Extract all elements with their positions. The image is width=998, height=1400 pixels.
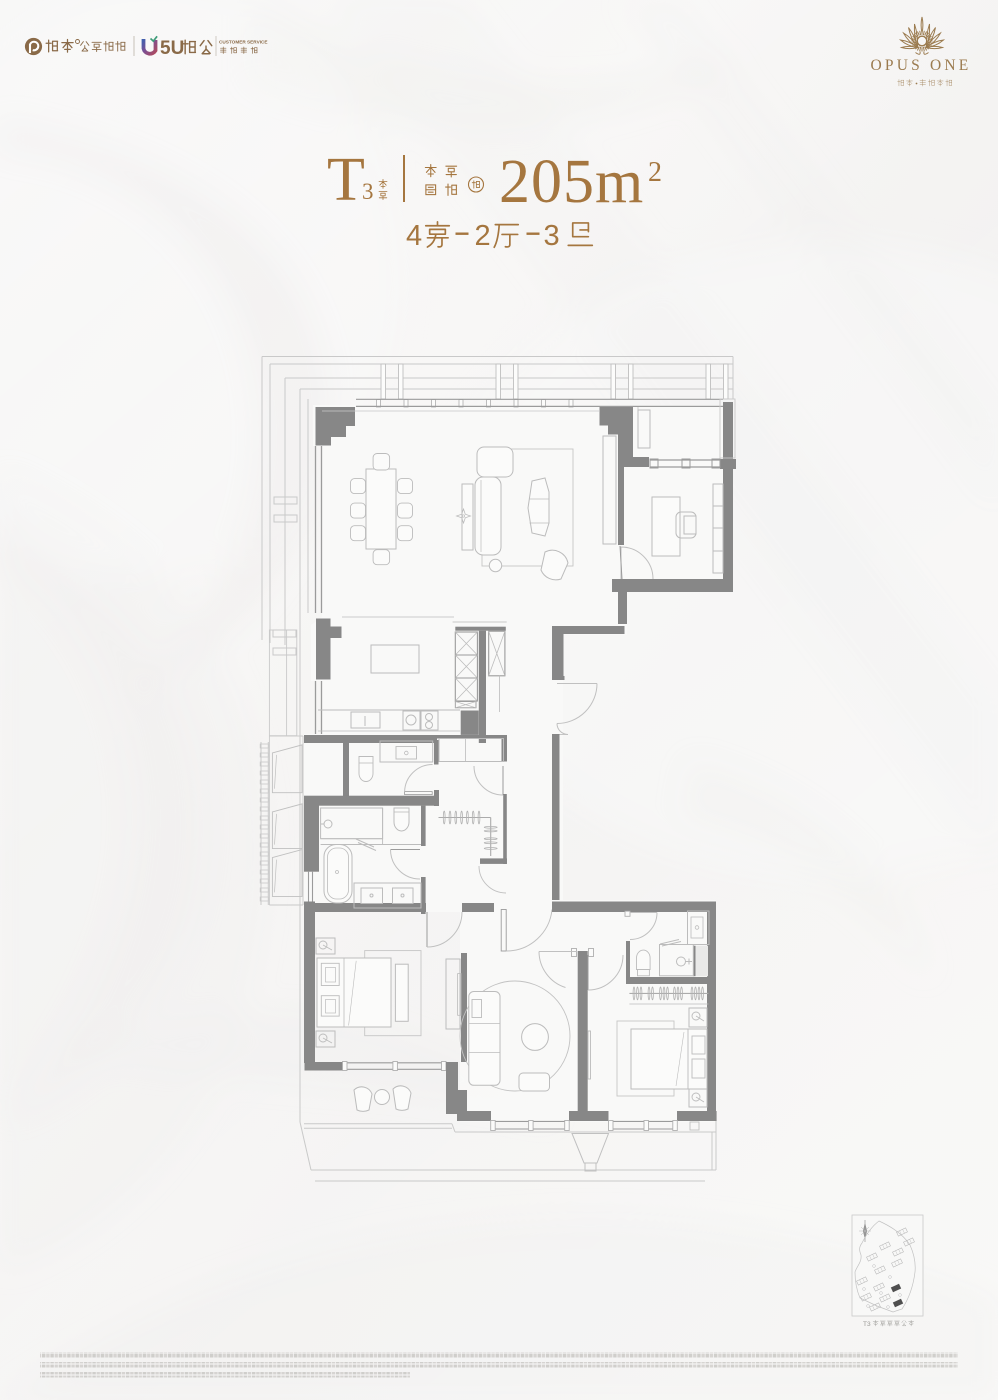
- svg-text:205m: 205m: [499, 148, 644, 216]
- svg-text:T3: T3: [863, 1321, 871, 1328]
- svg-text:4: 4: [406, 220, 422, 252]
- svg-text:2: 2: [648, 157, 662, 188]
- svg-text:2: 2: [475, 220, 491, 252]
- svg-text:5U: 5U: [160, 38, 184, 59]
- svg-text:T: T: [327, 146, 365, 214]
- svg-text:3: 3: [362, 179, 374, 204]
- svg-text:CUSTOMER SERVICE: CUSTOMER SERVICE: [219, 40, 268, 45]
- svg-text:OPUS ONE: OPUS ONE: [871, 57, 972, 74]
- svg-text:3: 3: [544, 220, 560, 252]
